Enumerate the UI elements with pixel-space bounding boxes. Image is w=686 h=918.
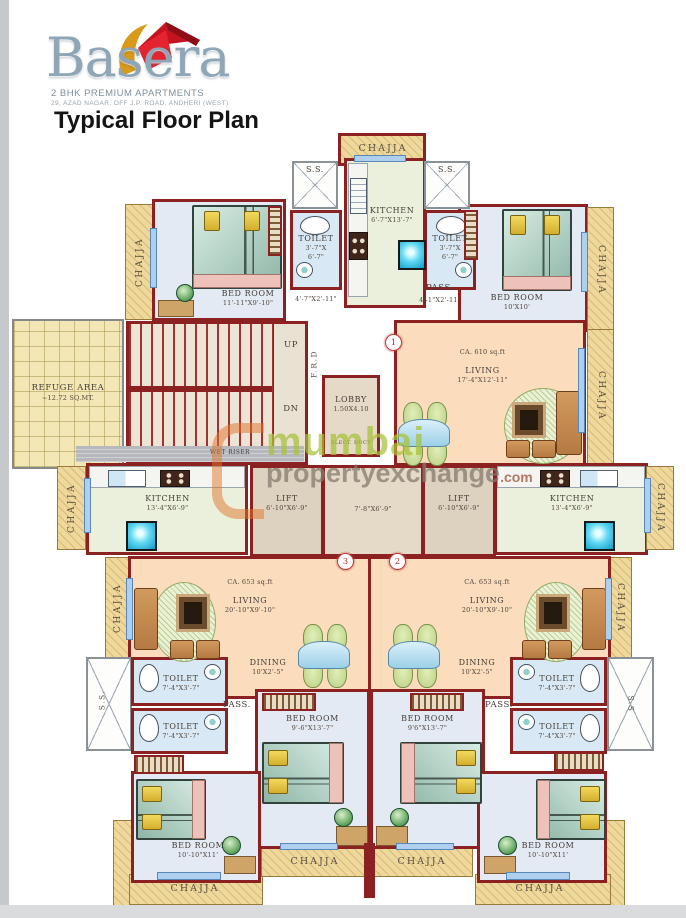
- desk-chair-icon: [176, 284, 194, 302]
- refuge-size: ~12.72 SQ.MT.: [20, 394, 116, 402]
- living-area: CA. 653 sq.ft: [195, 578, 305, 586]
- kitchen-label: KITCHEN: [362, 206, 422, 216]
- living-area: CA. 653 sq.ft: [432, 578, 542, 586]
- living-dims: 17'-4"X12'-11": [425, 376, 540, 384]
- page-left-border: [0, 0, 9, 918]
- room-label: KITCHEN 6'-7"X13'-7": [362, 206, 422, 225]
- kitchen-label: KITCHEN: [522, 494, 622, 504]
- window: [506, 872, 570, 880]
- wash-area-icon: [126, 521, 157, 551]
- lift-label: LIFT: [424, 494, 494, 504]
- elect-duct: ELECT. DUCT: [324, 440, 378, 447]
- toilet-label: TOILET: [426, 234, 474, 244]
- window: [126, 578, 133, 640]
- room-label: TOILET 3'-7"X 6'-7": [292, 234, 340, 261]
- desk-chair-icon: [498, 836, 517, 855]
- up-label: UP: [276, 340, 306, 351]
- page-bottom-border: [0, 905, 686, 918]
- bed-icon: [400, 742, 482, 804]
- toilet-label: TOILET: [140, 674, 222, 684]
- bed-icon: [136, 779, 206, 840]
- bed-icon: [536, 779, 606, 840]
- toilet-label: TOILET: [516, 722, 598, 732]
- dining-label: DINING: [228, 658, 308, 668]
- chair-icon: [522, 640, 546, 659]
- ss-label: S.S: [627, 696, 636, 713]
- stove-icon: [540, 470, 570, 487]
- chajja-label: CHAJJA: [596, 245, 606, 295]
- shaft-label: S.S.: [294, 165, 336, 175]
- window: [578, 348, 585, 433]
- kitchen-dims: 6'-7"X13'-7": [362, 216, 422, 224]
- living-area: CA. 610 sq.ft: [425, 348, 540, 356]
- desk-chair-icon: [222, 836, 241, 855]
- chair-icon: [532, 440, 556, 458]
- living-dims: 20'-10"X9'-10": [432, 606, 542, 614]
- kitchen-counter-icon: [497, 466, 645, 488]
- brand-address: 29, AZAD NAGAR, OFF J.P. ROAD, ANDHERI (…: [51, 100, 229, 107]
- dining-label: DINING: [437, 658, 517, 668]
- lift-label: LIFT: [252, 494, 322, 504]
- pass-label: PASS.: [474, 700, 524, 711]
- room-label: LIVING 20'-10"X9'-10": [432, 596, 542, 615]
- window: [150, 228, 157, 288]
- living-label: LIVING: [432, 596, 542, 606]
- wet-riser: WET RISER: [170, 449, 290, 457]
- ss-label: S.S.: [294, 165, 336, 175]
- staircase: [126, 321, 276, 465]
- room-label: LIVING 17'-4"X12'-11": [425, 366, 540, 385]
- kitchen-dims: 13'-4"X6'-9": [120, 504, 215, 512]
- chajja-label: CHAJJA: [155, 883, 235, 894]
- room-label: TOILET 7'-4"X3'-7": [140, 674, 222, 693]
- living-dims: 20'-10"X9'-10": [195, 606, 305, 614]
- chajja-label: CHAJJA: [500, 883, 580, 894]
- window: [605, 578, 612, 640]
- desk-chair-icon: [334, 808, 353, 827]
- shaft-bottom-left: [86, 657, 132, 751]
- dn-label: DN: [276, 404, 306, 415]
- room-label: LOBBY 1.50X4.10: [324, 395, 378, 414]
- wardrobe-icon: [554, 752, 604, 771]
- page-title: Typical Floor Plan: [54, 107, 259, 135]
- room-label: BED ROOM 9'6"X13'-7": [375, 714, 480, 733]
- toilet-dims: 7'-4"X3'-7": [140, 684, 222, 692]
- bedroom-label: BED ROOM: [375, 714, 480, 724]
- pass-dims: 4'-1"X2'-11": [402, 296, 478, 304]
- chajja-label: CHAJJA: [113, 583, 123, 633]
- toilet-wc-icon: [300, 216, 330, 235]
- window: [581, 232, 588, 292]
- passage-label: PASS.: [474, 700, 524, 711]
- chajja-label: CHAJJA: [135, 237, 145, 287]
- flat-marker-1: 1: [385, 334, 402, 351]
- washbasin-icon: [296, 262, 313, 278]
- bed-icon: [502, 209, 572, 291]
- window: [644, 478, 651, 533]
- sofa-icon: [582, 588, 606, 650]
- lift-dims: 6'-10"X6'-9": [252, 504, 322, 512]
- bedroom-dims: 10'X10': [462, 303, 572, 311]
- chajja-label: CHAJJA: [275, 856, 355, 867]
- lift-dims: 6'-10"X6'-9": [424, 504, 494, 512]
- toilet-label: TOILET: [516, 674, 598, 684]
- toilet-dims: 7'-4"X3'-7": [140, 732, 222, 740]
- chair-icon: [196, 640, 220, 659]
- chair-icon: [506, 440, 530, 458]
- washbasin-icon: [455, 262, 472, 278]
- room-label: LIFT 6'-10"X6'-9": [424, 494, 494, 513]
- bedroom-label: BED ROOM: [462, 293, 572, 303]
- passage-dims: 4'-1"X2'-11": [402, 296, 478, 304]
- sofa-icon: [134, 588, 158, 650]
- living-label: LIVING: [425, 366, 540, 376]
- desk-chair-icon: [390, 808, 409, 827]
- room-label: CA. 653 sq.ft: [195, 578, 305, 586]
- room-label: TOILET 7'-4"X3'-7": [516, 674, 598, 693]
- dining-dims: 10'X2'-5": [437, 668, 517, 676]
- frd-label: F.R.D: [310, 350, 319, 378]
- kitchen-dims: 13'-4"X6'-9": [522, 504, 622, 512]
- chajja-label: CHAJJA: [615, 583, 625, 633]
- refuge-title: REFUGE AREA: [20, 383, 116, 394]
- room-label: TOILET 7'-4"X3'-7": [516, 722, 598, 741]
- kitchen-label: KITCHEN: [120, 494, 215, 504]
- window: [396, 843, 454, 850]
- window: [84, 478, 91, 533]
- refuge-label: REFUGE AREA ~12.72 SQ.MT.: [20, 383, 116, 402]
- wall-stub: [364, 843, 375, 898]
- lobby-label: LOBBY: [324, 395, 378, 405]
- room-label: LIVING 20'-10"X9'-10": [195, 596, 305, 615]
- wash-area-icon: [584, 521, 615, 551]
- living-label: LIVING: [195, 596, 305, 606]
- elect-duct-label: ELECT. DUCT: [324, 440, 378, 447]
- shaft-label: S.S.: [426, 165, 468, 175]
- stove-icon: [349, 232, 368, 260]
- bed-icon: [262, 742, 344, 804]
- chajja-label: CHAJJA: [596, 371, 606, 421]
- lift-lobby-dims: 7'-8"X6'-9": [330, 505, 416, 513]
- wardrobe-icon: [410, 693, 464, 711]
- flat-marker-2: 2: [389, 553, 406, 570]
- toilet-dims: 3'-7"X: [426, 244, 474, 252]
- stove-icon: [160, 470, 190, 487]
- pass-dims: 4'-7"X2'-11": [280, 295, 352, 303]
- wardrobe-icon: [262, 693, 316, 711]
- toilet-label: TOILET: [140, 722, 222, 732]
- lift-lobby-dim: 7'-8"X6'-9": [330, 505, 416, 513]
- brand-tagline: 2 BHK PREMIUM APARTMENTS: [51, 88, 204, 99]
- pass-label: PASS.: [415, 283, 465, 294]
- stairs-down: DN: [276, 404, 306, 415]
- chajja-label: CHAJJA: [67, 483, 77, 533]
- ss-label: S.S.: [426, 165, 468, 175]
- window: [354, 155, 406, 162]
- passage-label: PASS.: [415, 283, 465, 294]
- passage-dims: 4'-7"X2'-11": [280, 295, 352, 303]
- chajja-label: CHAJJA: [655, 483, 665, 533]
- wash-area-icon: [398, 240, 426, 270]
- room-label: CA. 653 sq.ft: [432, 578, 542, 586]
- floor-plan-page: Basera 2 BHK PREMIUM APARTMENTS 29, AZAD…: [0, 0, 686, 918]
- dining-dims: 10'X2'-5": [228, 668, 308, 676]
- room-label: KITCHEN 13'-4"X6'-9": [522, 494, 622, 513]
- toilet-label: TOILET: [292, 234, 340, 244]
- bedroom-label: BED ROOM: [260, 714, 365, 724]
- chajja-label: CHAJJA: [382, 856, 462, 867]
- chair-icon: [170, 640, 194, 659]
- pass-label: PASS.: [212, 700, 262, 711]
- wardrobe-icon: [268, 206, 282, 256]
- brand-name: Basera: [46, 26, 230, 89]
- tv-unit-icon: [512, 402, 546, 438]
- room-label: KITCHEN 13'-4"X6'-9": [120, 494, 215, 513]
- room-label: TOILET 3'-7"X 6'-7": [426, 234, 474, 261]
- sink-icon: [108, 470, 146, 487]
- lobby-dims: 1.50X4.10: [324, 405, 378, 413]
- window: [157, 872, 221, 880]
- bedroom-dims: 9'-6"X13'-7": [260, 724, 365, 732]
- wardrobe-icon: [134, 755, 184, 774]
- stairs-up: UP: [276, 340, 306, 351]
- stair-landing-wall: [128, 386, 272, 392]
- ss-label: S.S.: [98, 690, 107, 711]
- wet-riser-label: WET RISER: [170, 449, 290, 457]
- dining-label-block: DINING 10'X2'-5": [228, 658, 308, 677]
- dining-label-block: DINING 10'X2'-5": [437, 658, 517, 677]
- window: [280, 843, 338, 850]
- room-label: BED ROOM 10'X10': [462, 293, 572, 312]
- toilet-dims: 6'-7": [426, 253, 474, 261]
- sink-icon: [580, 470, 618, 487]
- chajja-label: CHAJJA: [348, 143, 418, 154]
- toilet-dims: 6'-7": [292, 253, 340, 261]
- room-label: BED ROOM 9'-6"X13'-7": [260, 714, 365, 733]
- dining-table-icon: [388, 624, 440, 686]
- flat-marker-3: 3: [337, 553, 354, 570]
- passage-label: PASS.: [212, 700, 262, 711]
- toilet-wc-icon: [436, 216, 466, 235]
- bedroom-dims: 9'6"X13'-7": [375, 724, 480, 732]
- dining-table-icon: [398, 402, 450, 464]
- toilet-dims: 7'-4"X3'-7": [516, 684, 598, 692]
- chair-icon: [548, 640, 572, 659]
- room-label: CA. 610 sq.ft: [425, 348, 540, 356]
- toilet-dims: 3'-7"X: [292, 244, 340, 252]
- toilet-dims: 7'-4"X3'-7": [516, 732, 598, 740]
- room-label: TOILET 7'-4"X3'-7": [140, 722, 222, 741]
- desk-icon: [158, 300, 194, 317]
- room-label: LIFT 6'-10"X6'-9": [252, 494, 322, 513]
